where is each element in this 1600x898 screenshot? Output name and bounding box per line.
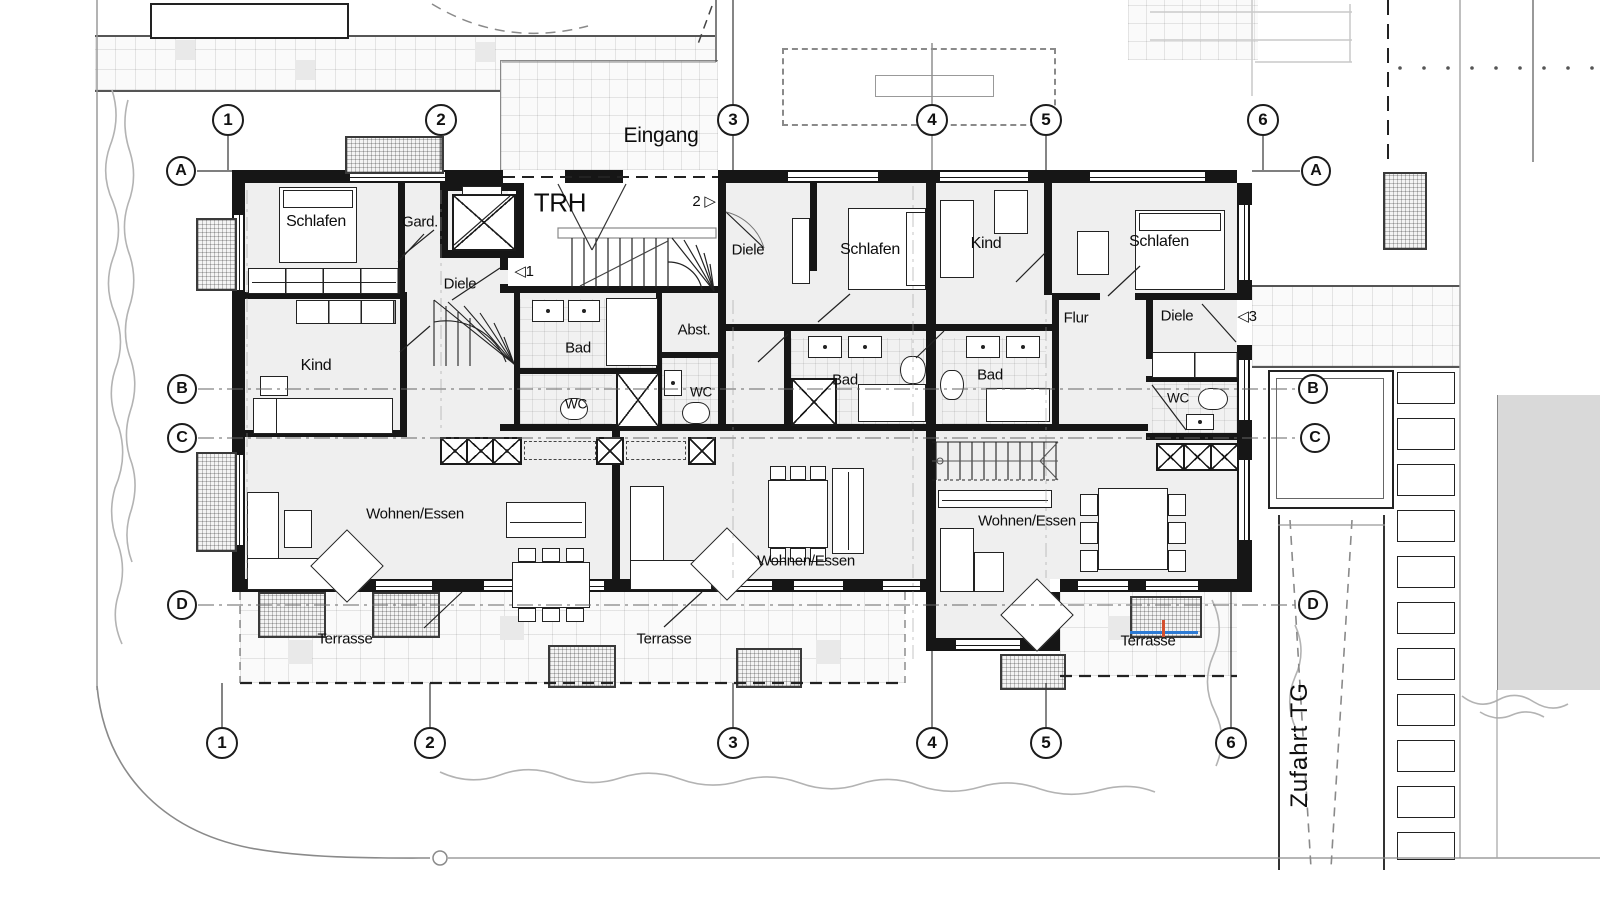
label-kind-3: Kind [971,235,1002,253]
label-schlafen-2: Schlafen [840,241,900,259]
grid-bubble-row-d-left: D [167,590,197,620]
label-bad-2: Bad [832,372,858,389]
grid-bubble-row-d-right: D [1298,590,1328,620]
label-wohnen-2: Wohnen/Essen [757,553,855,570]
door-marker-3: ◁3 [1237,307,1256,325]
door-marker-2: 2 ▷ [692,192,715,210]
label-eingang: Eingang [624,124,699,148]
label-terrasse-1: Terrasse [317,631,372,648]
grid-bubble-row-a-left: A [166,156,196,186]
grid-bubble-col-4-top: 4 [916,104,948,136]
label-diele-3: Diele [1161,308,1194,325]
label-bad-1: Bad [565,340,591,357]
grid-bubble-row-b-right: B [1298,374,1328,404]
label-schlafen-3: Schlafen [1129,233,1189,251]
grid-bubble-col-2-bottom: 2 [414,727,446,759]
grid-bubble-row-b-left: B [167,374,197,404]
grid-bubble-col-6-bottom: 6 [1215,727,1247,759]
grid-bubble-col-1-bottom: 1 [206,727,238,759]
grid-bubble-row-c-left: C [167,423,197,453]
label-wohnen-1: Wohnen/Essen [366,506,464,523]
linework-overlay [0,0,1600,898]
grid-bubble-col-3-bottom: 3 [717,727,749,759]
floor-plan: Eingang TRH Schlafen Gard. Diele Kind Ba… [0,0,1600,898]
label-zufahrt-tg: Zufahrt TG [1286,682,1314,808]
label-terrasse-3: Terrasse [1120,633,1175,650]
label-terrasse-2: Terrasse [636,631,691,648]
label-wc-trh: WC [690,385,712,400]
label-kind-1: Kind [301,357,332,375]
label-gard: Gard. [402,214,438,231]
grid-bubble-col-5-top: 5 [1030,104,1062,136]
label-diele-1: Diele [444,276,477,293]
grid-bubble-col-4-bottom: 4 [916,727,948,759]
label-trh: TRH [534,188,587,219]
label-wohnen-3: Wohnen/Essen [978,513,1076,530]
label-bad-3: Bad [977,367,1003,384]
grid-bubble-row-a-right: A [1301,156,1331,186]
grid-bubble-col-6-top: 6 [1247,104,1279,136]
grid-bubble-col-3-top: 3 [717,104,749,136]
label-flur: Flur [1064,310,1089,327]
door-marker-1: ◁1 [514,262,533,280]
label-diele-2: Diele [732,242,765,259]
grid-bubble-col-5-bottom: 5 [1030,727,1062,759]
label-abst: Abst. [678,322,711,339]
grid-bubble-col-1-top: 1 [212,104,244,136]
label-wc-3: WC [1167,391,1189,406]
label-schlafen-1: Schlafen [286,213,346,231]
label-wc-1: WC [565,397,587,412]
grid-bubble-col-2-top: 2 [425,104,457,136]
grid-bubble-row-c-right: C [1300,423,1330,453]
